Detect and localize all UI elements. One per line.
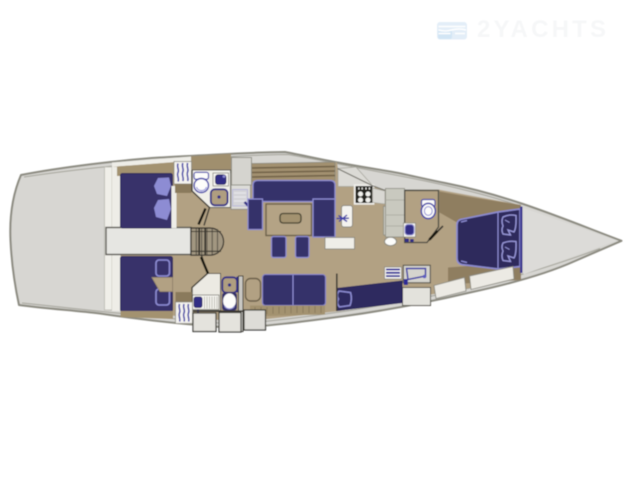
svg-text:2YACHTS: 2YACHTS xyxy=(477,16,609,43)
